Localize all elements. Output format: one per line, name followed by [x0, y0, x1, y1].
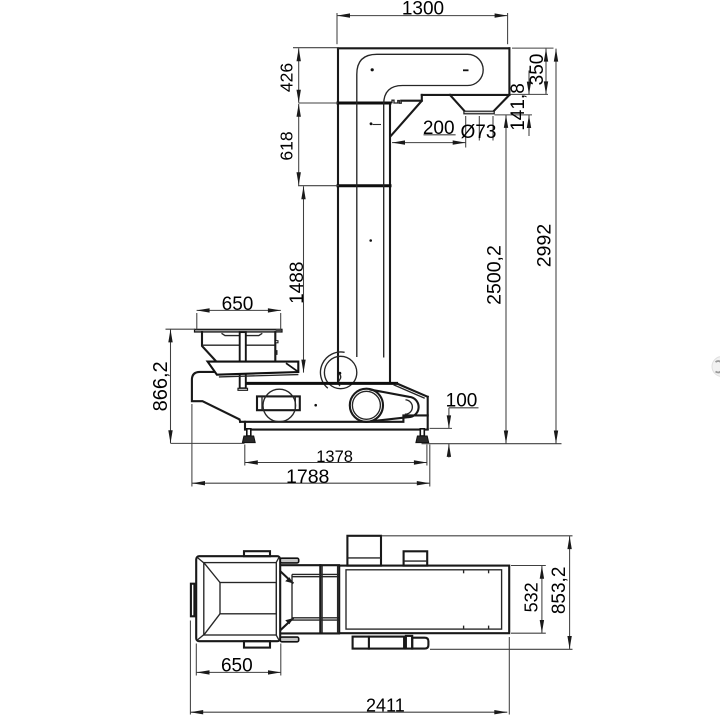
svg-text:2411: 2411 [366, 695, 405, 715]
svg-text:2992: 2992 [534, 224, 556, 267]
svg-text:650: 650 [222, 294, 254, 315]
svg-text:618: 618 [277, 131, 297, 160]
svg-text:650: 650 [221, 655, 253, 676]
svg-text:Ø73: Ø73 [461, 122, 497, 143]
svg-text:866,2: 866,2 [150, 361, 172, 411]
svg-text:1788: 1788 [286, 466, 329, 488]
svg-text:853,2: 853,2 [549, 567, 570, 615]
svg-text:2500,2: 2500,2 [484, 245, 506, 305]
svg-text:100: 100 [446, 391, 478, 412]
svg-text:350: 350 [527, 54, 548, 86]
svg-text:141,8: 141,8 [508, 83, 529, 131]
svg-text:1300: 1300 [402, 0, 444, 20]
svg-text:200: 200 [423, 118, 455, 139]
svg-text:1378: 1378 [316, 448, 353, 466]
svg-text:532: 532 [522, 582, 542, 612]
svg-text:1488: 1488 [287, 262, 308, 304]
svg-text:426: 426 [277, 63, 297, 92]
